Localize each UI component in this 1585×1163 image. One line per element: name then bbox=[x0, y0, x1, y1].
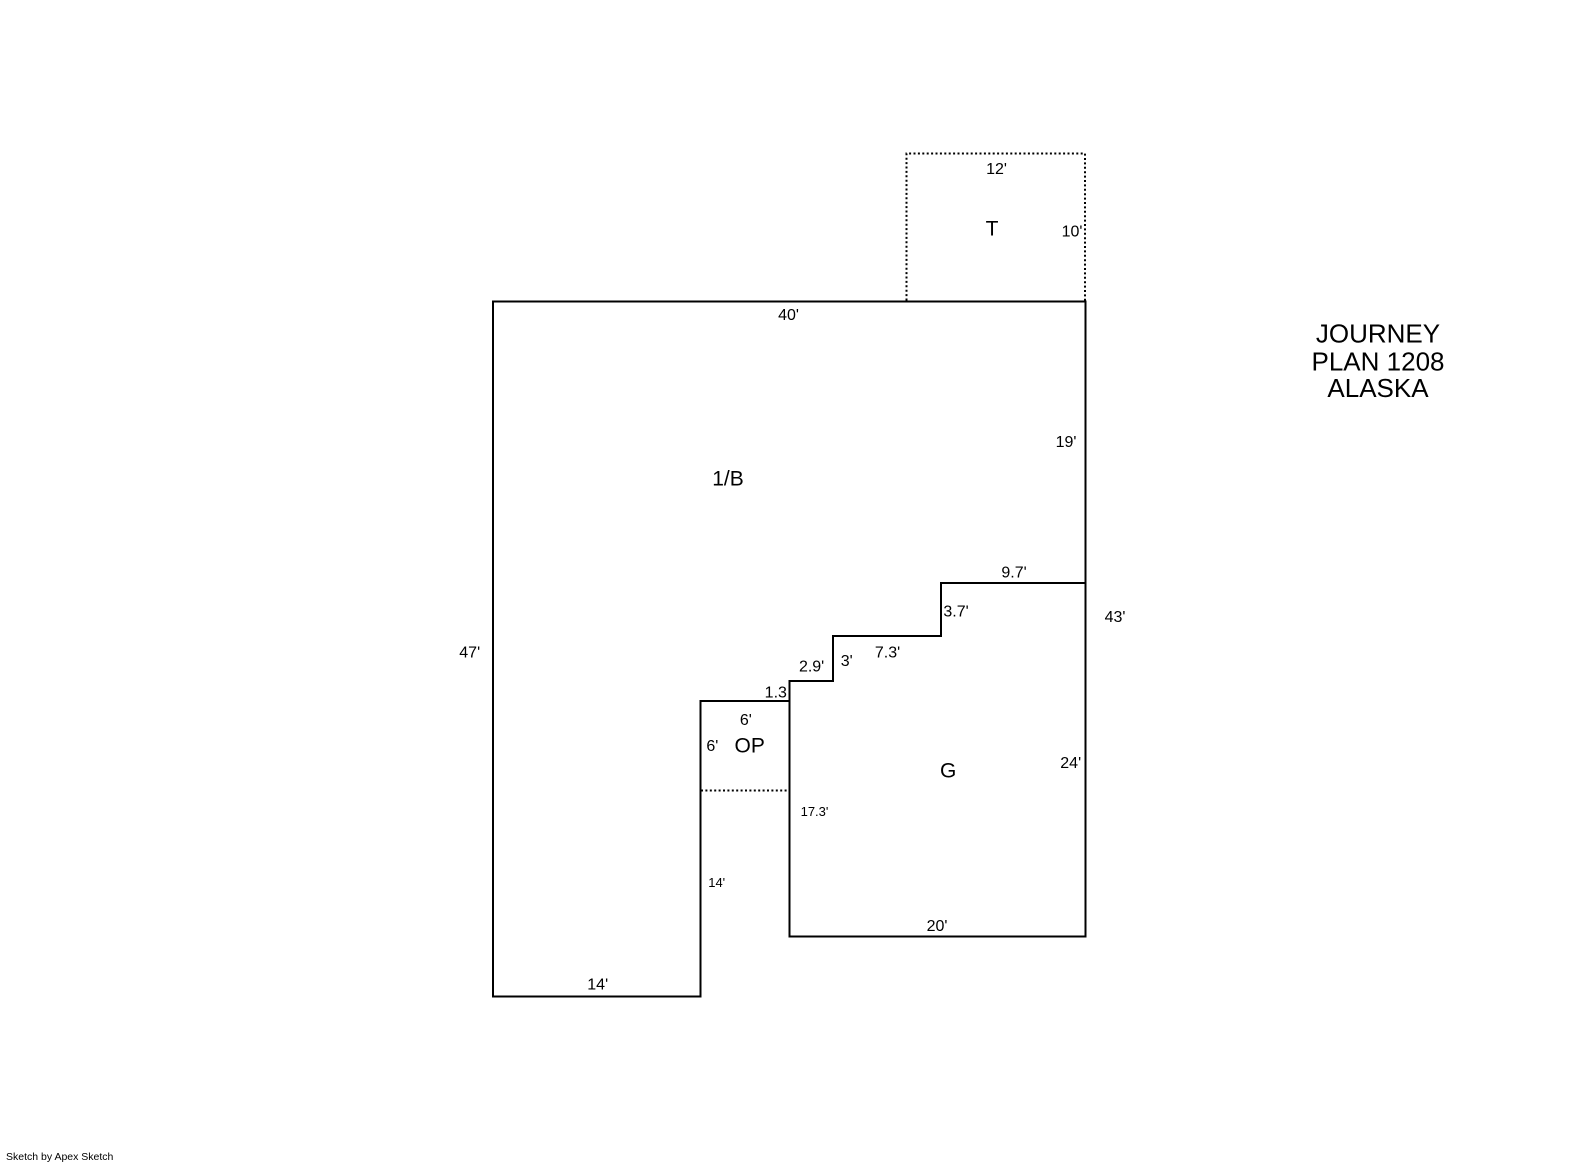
svg-text:OP: OP bbox=[735, 735, 765, 758]
svg-text:3.7': 3.7' bbox=[943, 604, 968, 621]
svg-text:JOURNEY: JOURNEY bbox=[1316, 318, 1440, 348]
svg-text:9.7': 9.7' bbox=[1001, 565, 1026, 582]
svg-text:40': 40' bbox=[778, 307, 799, 324]
svg-text:12': 12' bbox=[986, 161, 1007, 178]
svg-text:17.3': 17.3' bbox=[801, 804, 829, 819]
svg-text:24': 24' bbox=[1060, 755, 1081, 772]
svg-text:6': 6' bbox=[740, 712, 752, 729]
svg-text:19': 19' bbox=[1056, 434, 1077, 451]
svg-text:T: T bbox=[986, 218, 999, 241]
svg-text:1/B: 1/B bbox=[712, 467, 744, 490]
svg-text:10': 10' bbox=[1062, 224, 1083, 241]
svg-text:6': 6' bbox=[706, 738, 718, 755]
svg-text:43': 43' bbox=[1105, 609, 1126, 626]
svg-text:7.3': 7.3' bbox=[875, 645, 900, 662]
svg-text:ALASKA: ALASKA bbox=[1327, 373, 1429, 403]
svg-text:G: G bbox=[940, 760, 956, 783]
svg-text:3': 3' bbox=[841, 653, 853, 670]
svg-text:1.3: 1.3 bbox=[765, 684, 787, 701]
svg-text:2.9': 2.9' bbox=[799, 659, 824, 676]
svg-text:20': 20' bbox=[927, 918, 948, 935]
svg-text:47': 47' bbox=[459, 645, 480, 662]
svg-text:14': 14' bbox=[708, 875, 725, 890]
svg-text:Sketch by Apex Sketch: Sketch by Apex Sketch bbox=[6, 1151, 114, 1163]
svg-text:14': 14' bbox=[587, 976, 608, 993]
